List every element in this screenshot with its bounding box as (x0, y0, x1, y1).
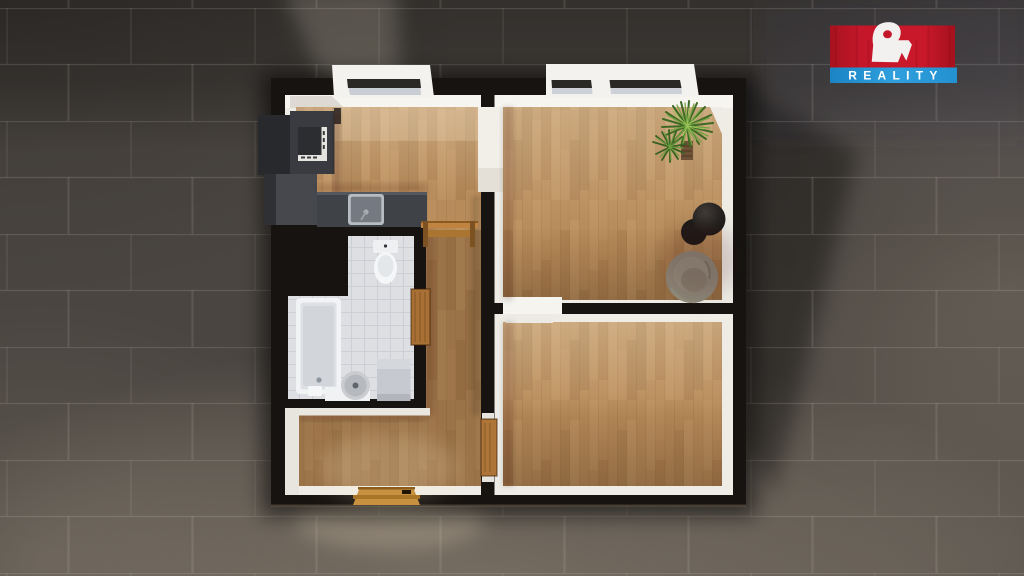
svg-text:REALITY: REALITY (848, 69, 943, 83)
